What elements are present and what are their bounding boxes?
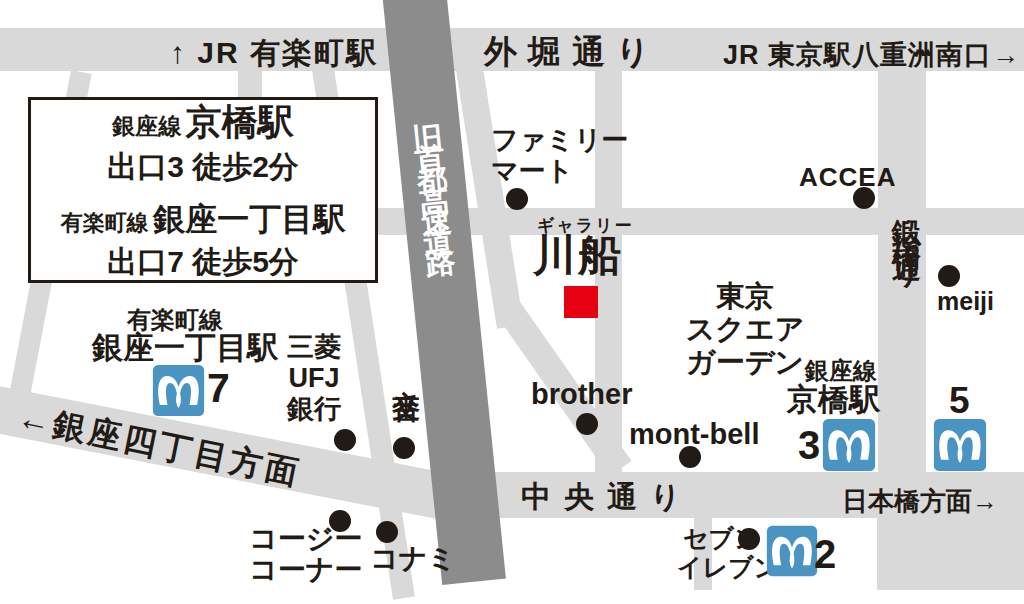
poi-dot-cozy-corner — [329, 510, 351, 532]
seven-line2: イレブン — [677, 553, 779, 582]
access-map: 旧首都高速道路 ↑ JR 有楽町駅 外堀通り JR 東京駅八重洲南口→ 銀座線 … — [0, 0, 1024, 604]
info-ginza1-line: 有楽町線 銀座一丁目駅 — [61, 198, 345, 242]
road-stub-top-left — [238, 70, 262, 98]
brother-label: brother — [531, 378, 633, 412]
koban-label: 交番 — [389, 367, 421, 375]
jr-tokyo-yaesu-direction: JR 東京駅八重洲南口→ — [723, 40, 1020, 71]
exit2-number: 2 — [814, 531, 836, 577]
kyobashi-exit3-number: 3 — [798, 422, 820, 468]
info-kyobashi-line: 銀座線 京橋駅 — [112, 98, 293, 147]
poi-dot-brother — [576, 413, 598, 435]
info-kyobashi-station-name: 京橋駅 — [186, 101, 294, 142]
sotobori-dori-label: 外堀通り — [484, 33, 661, 71]
info-ginza1-station-name: 銀座一丁目駅 — [153, 201, 345, 237]
mufj-line2: UFJ — [280, 363, 348, 394]
jr-yurakucho-direction: ↑ JR 有楽町駅 — [170, 36, 378, 71]
poi-dot-seven-eleven — [738, 528, 760, 550]
tokyo-metro-icon — [933, 418, 987, 472]
kyobashi-line-label: 銀座線 — [805, 357, 877, 385]
tokyo-metro-icon — [152, 364, 205, 417]
poi-dot-montbell — [679, 446, 701, 468]
seven-eleven-label: セブン イレブン — [677, 524, 779, 582]
chuo-dori-label: 中央通り — [521, 480, 694, 515]
ginza1-station-label: 銀座一丁目駅 — [92, 330, 278, 366]
meiji-label: meiji — [937, 287, 994, 316]
info-ginza1-exit: 出口7 徒歩5分 — [107, 242, 299, 283]
tokyo-metro-logo-exit5 — [933, 418, 987, 476]
cozy-corner-label: コージー コーナー — [249, 523, 362, 585]
kyobashi-station-label: 京橋駅 — [787, 382, 880, 418]
seven-line1: セブン — [677, 524, 779, 553]
familymart-line2: マート — [491, 156, 629, 187]
mitsubishi-ufj-label: 三菱 UFJ 銀行 — [280, 332, 348, 425]
exit7-number: 7 — [207, 365, 230, 413]
tokyo-metro-icon — [766, 524, 818, 578]
gallery-name: 川船 — [533, 231, 623, 281]
poi-dot-accea — [853, 187, 875, 209]
nihonbashi-direction: 日本橋方面→ — [842, 486, 998, 516]
info-kyobashi-line-name: 銀座線 — [112, 113, 181, 139]
tokyo-metro-logo-exit3 — [822, 418, 876, 476]
kajibashi-dori-label: 鍛冶橋通り — [889, 196, 923, 284]
poi-dot-familymart — [506, 188, 528, 210]
exit5-number: 5 — [949, 380, 970, 423]
mufj-line3: 銀行 — [280, 394, 348, 425]
tsg-line1: 東京 — [655, 280, 835, 313]
tsg-line2: スクエア — [655, 313, 835, 346]
familymart-label: ファミリー マート — [491, 125, 629, 188]
road-bottom-right-block — [877, 516, 1024, 590]
poi-dot-mitsubishi-ufj — [334, 429, 356, 451]
info-ginza1-line-name: 有楽町線 — [61, 210, 149, 235]
poi-dot-koban — [393, 437, 415, 459]
familymart-line1: ファミリー — [491, 125, 629, 156]
poi-dot-meiji — [938, 265, 960, 287]
cozy-line2: コーナー — [249, 554, 362, 585]
mufj-line1: 三菱 — [280, 332, 348, 363]
konami-label: コナミ — [370, 543, 456, 575]
info-kyobashi-exit: 出口3 徒歩2分 — [107, 147, 299, 188]
accea-label: ACCEA — [799, 162, 896, 192]
tokyo-metro-icon — [822, 418, 876, 472]
gallery-marker — [564, 286, 598, 318]
poi-dot-konami — [376, 521, 398, 543]
station-info-box: 銀座線 京橋駅 出口3 徒歩2分 有楽町線 銀座一丁目駅 出口7 徒歩5分 — [28, 97, 378, 283]
tokyo-metro-logo-exit2 — [766, 524, 818, 582]
tokyo-metro-logo-exit7 — [152, 364, 205, 421]
